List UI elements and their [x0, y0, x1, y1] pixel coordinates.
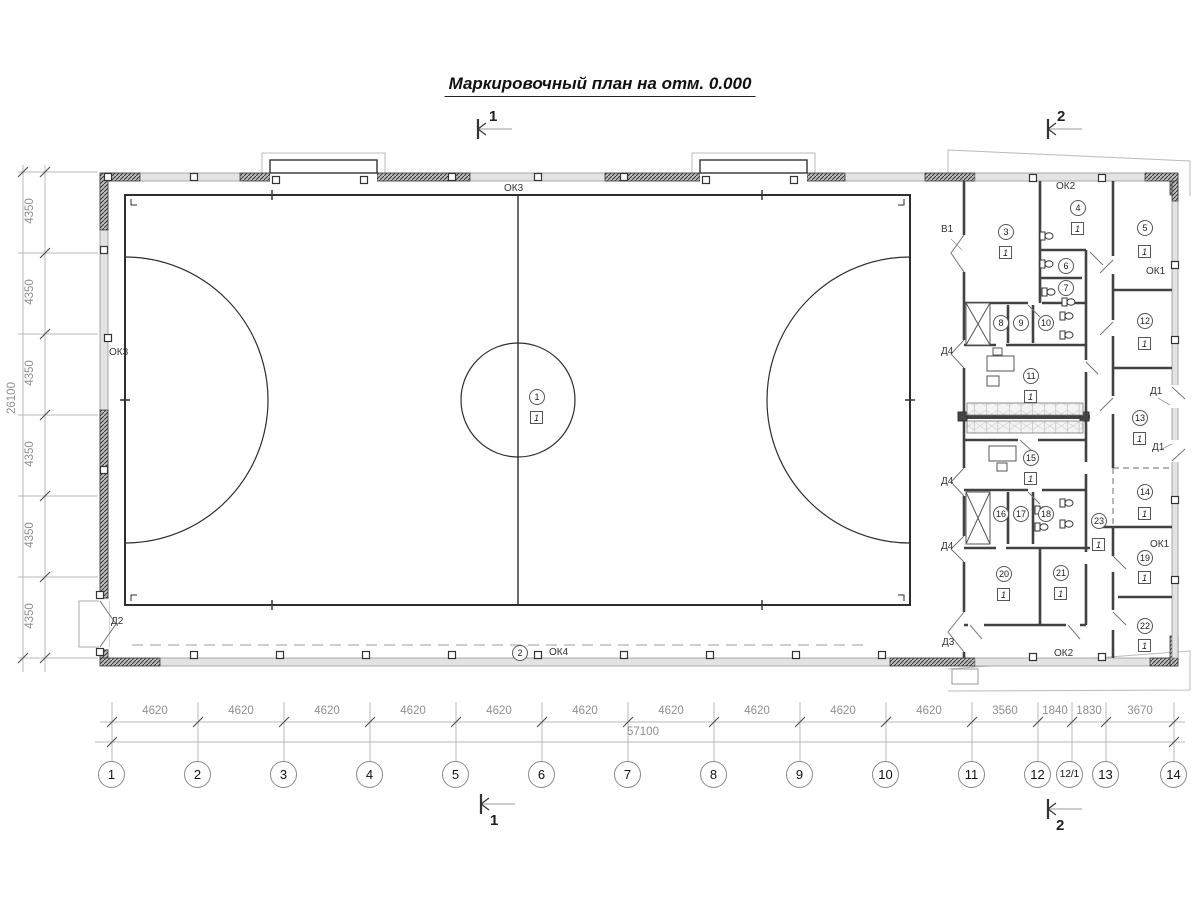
- room-marker-12: 12: [1137, 313, 1153, 329]
- door-label-d4-b: Д4: [941, 476, 953, 487]
- floor-marker-11: 1: [1024, 390, 1037, 403]
- dim-value: 4620: [821, 705, 865, 717]
- dim-total-horizontal: 57100: [621, 726, 665, 738]
- axis-bubble-14: 14: [1160, 761, 1187, 788]
- section-label-2-bottom: 2: [1056, 817, 1064, 834]
- axis-bubble-2: 2: [184, 761, 211, 788]
- axis-bubble-3: 3: [270, 761, 297, 788]
- axis-bubble-12: 12: [1024, 761, 1051, 788]
- room-marker-19: 19: [1137, 550, 1153, 566]
- room-marker-23: 23: [1091, 513, 1107, 529]
- axis-bubble-13: 13: [1092, 761, 1119, 788]
- room-marker-14: 14: [1137, 484, 1153, 500]
- floor-marker-19: 1: [1138, 571, 1151, 584]
- window-label-ok3-top: ОК3: [504, 183, 523, 194]
- room-marker-11: 11: [1023, 368, 1039, 384]
- room-marker-7: 7: [1058, 280, 1074, 296]
- window-label-ok2-bottom: ОК2: [1054, 648, 1073, 659]
- dim-value: 4620: [649, 705, 693, 717]
- axis-bubble-5: 5: [442, 761, 469, 788]
- plan-linework: [0, 0, 1200, 900]
- axis-bubble-10: 10: [872, 761, 899, 788]
- door-label-d1-upper: Д1: [1150, 386, 1162, 397]
- section-label-1-top: 1: [489, 108, 497, 125]
- dim-value: 4620: [735, 705, 779, 717]
- room-marker-20: 20: [996, 566, 1012, 582]
- floor-marker-12: 1: [1138, 337, 1151, 350]
- court-markings: [120, 190, 915, 610]
- axis-bubble-6: 6: [528, 761, 555, 788]
- door-label-d4-a: Д4: [941, 346, 953, 357]
- axis-bubble-8: 8: [700, 761, 727, 788]
- axis-bubble-1: 1: [98, 761, 125, 788]
- section-label-2-top: 2: [1057, 108, 1065, 125]
- ramp-outlines: [79, 150, 1190, 691]
- room-marker-10: 10: [1038, 315, 1054, 331]
- drawing-title: Маркировочный план на отм. 0.000: [445, 74, 756, 97]
- window-label-ok2-top: ОК2: [1056, 181, 1075, 192]
- door-label-d1-lower: Д1: [1152, 442, 1164, 453]
- dashed-lines: [132, 468, 1172, 645]
- floor-marker-13: 1: [1133, 432, 1146, 445]
- room-marker-6: 6: [1058, 258, 1074, 274]
- floor-marker-4: 1: [1071, 222, 1084, 235]
- dim-value: 3560: [983, 705, 1027, 717]
- floor-marker-15: 1: [1024, 472, 1037, 485]
- floor-marker-14: 1: [1138, 507, 1151, 520]
- room-marker-13: 13: [1132, 410, 1148, 426]
- room-marker-22: 22: [1137, 618, 1153, 634]
- dim-value: 4620: [477, 705, 521, 717]
- floor-plan: Маркировочный план на отм. 0.000 ОК3 ОК3…: [0, 0, 1200, 900]
- window-label-ok1-lower: ОК1: [1150, 539, 1169, 550]
- room-marker-15: 15: [1023, 450, 1039, 466]
- room-marker-21: 21: [1053, 565, 1069, 581]
- dim-value: 4620: [563, 705, 607, 717]
- room-marker-5: 5: [1137, 220, 1153, 236]
- floor-marker-23: 1: [1092, 538, 1105, 551]
- axis-bubble-7: 7: [614, 761, 641, 788]
- dim-value: 4350: [24, 270, 36, 314]
- room-marker-8: 8: [993, 315, 1009, 331]
- room-marker-3: 3: [998, 224, 1014, 240]
- floor-marker-22: 1: [1138, 639, 1151, 652]
- axis-bubble-9: 9: [786, 761, 813, 788]
- door-label-d2: Д2: [111, 616, 123, 627]
- dim-value: 4620: [133, 705, 177, 717]
- window-label-ok3-left: ОК3: [109, 347, 128, 358]
- floor-marker-1: 1: [530, 411, 543, 424]
- axis-bubble-4: 4: [356, 761, 383, 788]
- dim-value: 4620: [907, 705, 951, 717]
- door-label-d3: Д3: [942, 637, 954, 648]
- room-marker-4: 4: [1070, 200, 1086, 216]
- floor-marker-20: 1: [997, 588, 1010, 601]
- floor-marker-5: 1: [1138, 245, 1151, 258]
- section-label-1-bottom: 1: [490, 812, 498, 829]
- floor-marker-21: 1: [1054, 587, 1067, 600]
- dim-value: 3670: [1118, 705, 1162, 717]
- dim-value: 4350: [24, 594, 36, 638]
- axis-bubble-12-1: 12/1: [1056, 761, 1083, 788]
- dim-value: 4350: [24, 351, 36, 395]
- window-label-ok4: ОК4: [549, 647, 568, 658]
- dim-total-vertical: 26100: [6, 376, 18, 420]
- door-swings: [100, 235, 1185, 652]
- dim-value: 1830: [1067, 705, 1111, 717]
- room-marker-17: 17: [1013, 506, 1029, 522]
- dim-value: 4620: [305, 705, 349, 717]
- dim-value: 4620: [391, 705, 435, 717]
- dim-value: 4350: [24, 189, 36, 233]
- room-marker-2: 2: [512, 645, 528, 661]
- door-label-v1: В1: [941, 224, 953, 235]
- floor-marker-3: 1: [999, 246, 1012, 259]
- room-marker-16: 16: [993, 506, 1009, 522]
- door-label-d4-c: Д4: [941, 541, 953, 552]
- room-marker-9: 9: [1013, 315, 1029, 331]
- dim-value: 4350: [24, 432, 36, 476]
- dim-value: 4350: [24, 513, 36, 557]
- dim-value: 4620: [219, 705, 263, 717]
- room-marker-18: 18: [1038, 506, 1054, 522]
- window-label-ok1-upper: ОК1: [1146, 266, 1165, 277]
- axis-bubble-11: 11: [958, 761, 985, 788]
- room-marker-1: 1: [529, 389, 545, 405]
